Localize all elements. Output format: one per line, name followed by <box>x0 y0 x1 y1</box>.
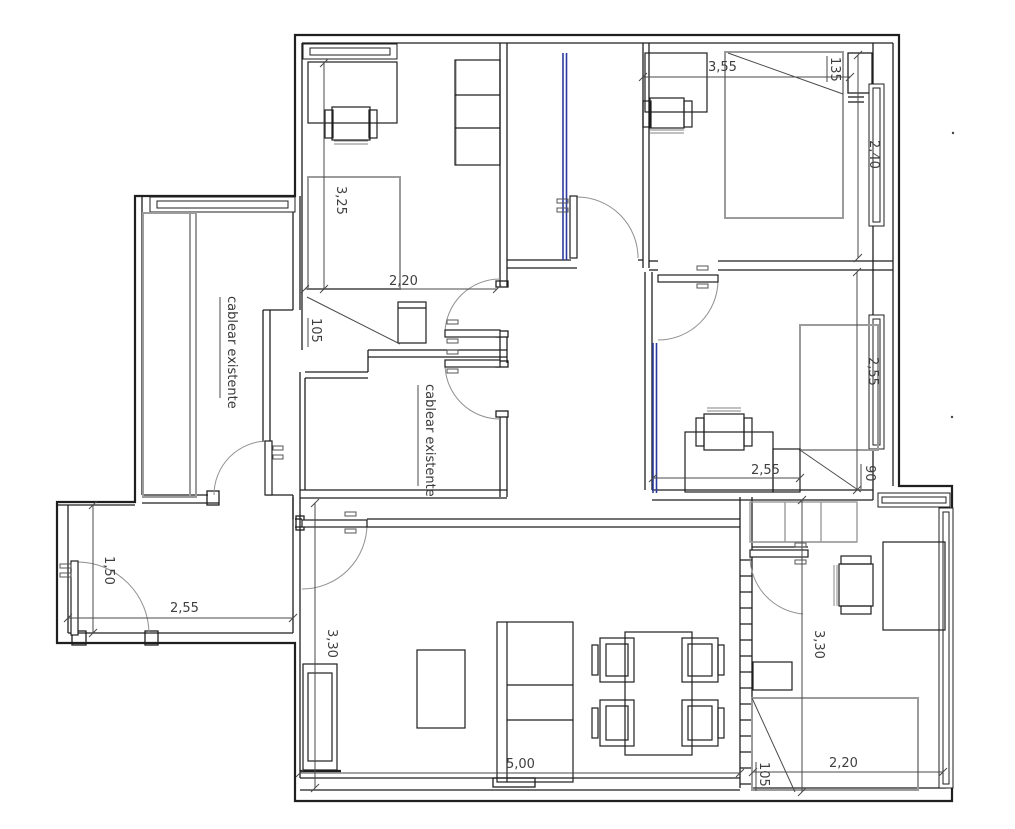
furniture <box>300 53 945 782</box>
door-leaf <box>658 275 718 282</box>
dim-office-width: 2,20 <box>389 274 418 289</box>
sliding-wardrobe <box>750 502 857 542</box>
office-chair <box>643 98 692 128</box>
hatched-wall-rungs <box>740 560 752 784</box>
cabinet <box>398 302 426 343</box>
dim-entry-width: 2,55 <box>170 601 199 616</box>
dim-entry-depth: 1,50 <box>101 556 116 585</box>
dining-chair <box>592 638 634 682</box>
dining-chair <box>592 700 634 746</box>
door-leaf <box>302 520 367 527</box>
desk <box>883 542 945 630</box>
single-bed <box>800 325 878 450</box>
dim-office-strip: 105 <box>308 318 323 343</box>
note-cablear-existente-left: cablear existente <box>224 296 239 409</box>
door-leaf <box>71 561 78 635</box>
floor-plan-drawing: 3,55 135 2,40 3,25 2,20 105 2,55 2,55 90… <box>0 0 1015 829</box>
door-leaves <box>71 196 808 635</box>
dim-bedroom3-depth: 3,30 <box>811 630 826 659</box>
radiator <box>300 664 341 771</box>
annotations: cablear existente cablear existente <box>224 296 437 497</box>
dim-living-width: 5,00 <box>506 757 535 772</box>
desk <box>685 432 773 492</box>
shelf-unit <box>455 60 500 165</box>
dimension-labels: 3,55 135 2,40 3,25 2,20 105 2,55 2,55 90… <box>101 57 881 787</box>
dim-bedroom2-width: 2,55 <box>751 463 780 478</box>
specks <box>951 132 954 418</box>
dining-chair <box>682 638 724 682</box>
dim-office-depth: 3,25 <box>333 186 348 215</box>
door-leaf <box>445 330 500 337</box>
office-chair <box>839 556 873 614</box>
walls <box>57 35 952 801</box>
dim-bedroom1-width: 3,55 <box>708 60 737 75</box>
dim-bedroom1-recess: 135 <box>827 57 842 82</box>
dim-bedroom2-window: 2,55 <box>865 357 880 386</box>
note-cablear-existente-middle: cablear existente <box>422 384 437 497</box>
dim-bedroom2-recess: 90 <box>862 465 877 482</box>
door-leaf <box>570 196 577 258</box>
dim-bedroom3-width: 2,20 <box>829 756 858 771</box>
door-swing-arcs <box>78 197 803 633</box>
floor-plan-canvas: 3,55 135 2,40 3,25 2,20 105 2,55 2,55 90… <box>0 0 1015 829</box>
door-leaf <box>445 360 500 367</box>
desk <box>308 62 397 123</box>
wardrobe <box>143 213 196 497</box>
single-bed <box>308 177 400 289</box>
door-leaf <box>750 550 808 557</box>
desk <box>645 53 707 112</box>
dining-chair <box>682 700 724 746</box>
dim-living-depth: 3,30 <box>324 629 339 658</box>
door-leaf <box>265 441 272 495</box>
exterior-wall-outline <box>57 35 952 801</box>
dim-bedroom1-window: 2,40 <box>866 140 881 169</box>
coffee-table <box>417 650 465 728</box>
nightstand <box>753 662 792 690</box>
dim-bedroom3-strip: 105 <box>756 762 771 787</box>
double-bed <box>752 698 918 790</box>
